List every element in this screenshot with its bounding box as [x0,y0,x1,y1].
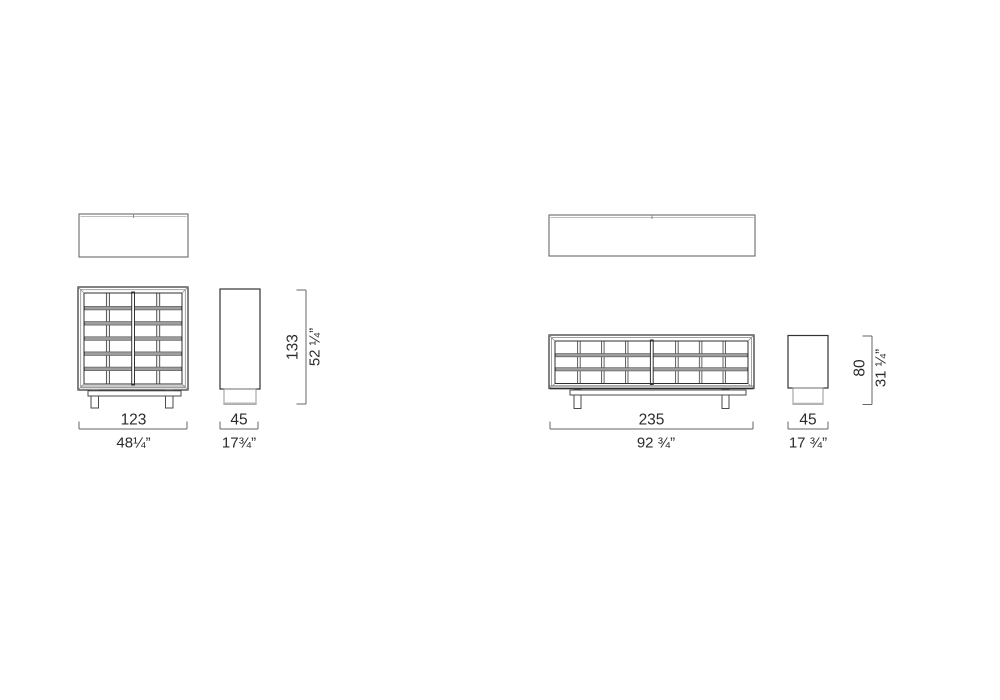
door-meeting-stile [132,292,135,385]
cabinet-width-inch: 48¼” [116,435,150,450]
sideboard-stretcher-rail [570,390,746,395]
cabinet-depth-inch: 17¾” [222,435,256,450]
sideboard-depth-cm: 45 [799,412,816,428]
cabinet-top-view [79,214,188,257]
cabinet-width-cm: 123 [121,412,147,428]
sideboard-top-view [549,215,755,256]
cabinet-side-view [220,289,260,405]
cabinet-height-cm: 133 [285,334,301,360]
sideboard-width-cm: 235 [639,412,665,428]
sideboard-height-inch: 31 ¼” [874,349,889,387]
cabinet-height-inch: 52 ¼” [307,327,322,365]
sideboard-depth-inch: 17 ¾” [789,435,827,450]
furniture-line-drawing [0,0,1000,700]
door-meeting-stile [650,340,653,385]
sideboard-width-inch: 92 ¾” [637,435,675,450]
cabinet-front-view [78,287,188,408]
cabinet-legs [88,390,181,408]
sideboard-side-view [788,336,828,405]
sideboard-legs [570,390,746,409]
spec-sheet-canvas: 123 48¼” 45 17¾” 133 52 ¼” 235 92 ¾” 45 … [0,0,1000,700]
cabinet-depth-cm: 45 [230,412,247,428]
cabinet-stretcher-rail [88,391,181,396]
sideboard-height-cm: 80 [852,359,868,376]
sideboard-front-view [549,335,754,409]
